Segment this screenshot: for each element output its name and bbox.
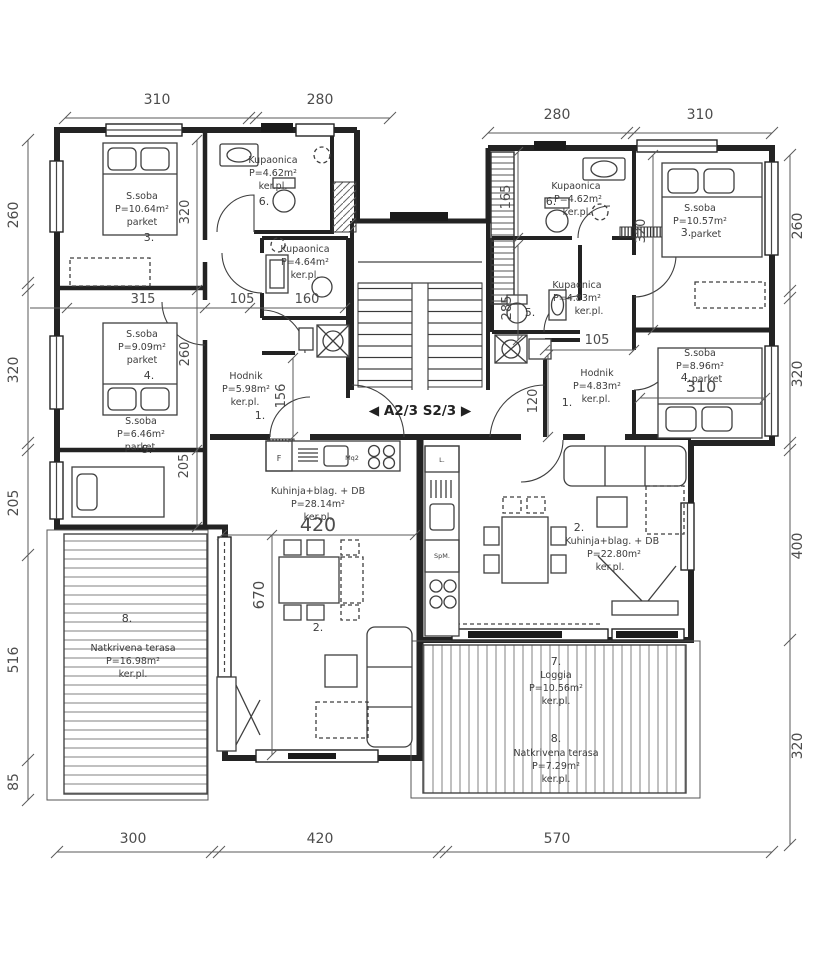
room-left-kitchen-area: P=28.14m² bbox=[291, 499, 345, 510]
room-right-bath5-area: P=4.83m² bbox=[553, 293, 601, 304]
closet-shelving bbox=[491, 152, 514, 304]
floor-plan-drawing: 310 280 280 310 300 420 570 260 320 205 … bbox=[0, 0, 818, 960]
room-right-hodnik-area: P=4.83m² bbox=[573, 381, 621, 392]
dim-left-2: 320 bbox=[6, 357, 22, 384]
room-left-bed4-area: P=9.09m² bbox=[118, 342, 166, 353]
room-left-hodnik-floor: ker.pl. bbox=[231, 397, 260, 408]
room-right-bath6-number: 6. bbox=[546, 195, 557, 208]
room-right-kitchen-area: P=22.80m² bbox=[587, 549, 641, 560]
room-right-bed4-floor: parket bbox=[692, 374, 723, 385]
room-left-terrace-area: P=16.98m² bbox=[106, 656, 160, 667]
dim-left-5: 85 bbox=[6, 773, 22, 791]
room-right-hodnik-number: 1. bbox=[562, 396, 573, 409]
room-left-bath6-area: P=4.62m² bbox=[249, 168, 297, 179]
dim-bottom-1: 300 bbox=[120, 831, 147, 847]
roller-shutter-left bbox=[261, 123, 293, 132]
room-left-bath7-floor: ker.pl. bbox=[291, 270, 320, 281]
room-left-kitchen-number: 2. bbox=[313, 621, 324, 634]
room-right-terrace-number: 8. bbox=[551, 732, 562, 745]
room-left-bed3-number: 3. bbox=[144, 231, 155, 244]
room-right-loggia-name: Loggia bbox=[540, 670, 571, 681]
room-right-loggia-floor: ker.pl. bbox=[542, 696, 571, 707]
room-left-bed4-name: S.soba bbox=[126, 329, 158, 340]
room-left-bed4-number: 4. bbox=[144, 369, 155, 382]
dim-inner-205: 205 bbox=[177, 454, 192, 479]
dim-left-4: 516 bbox=[6, 647, 22, 674]
room-right-kitchen-floor: ker.pl. bbox=[596, 562, 625, 573]
dim-inner-156: 156 bbox=[274, 384, 289, 409]
dim-inner-165: 165 bbox=[499, 185, 514, 210]
room-left-bath7-name: Kupaonica bbox=[280, 244, 329, 255]
room-left-bed5-name: S.soba bbox=[125, 416, 157, 427]
dim-right-2: 320 bbox=[790, 361, 806, 388]
room-right-bath6-name: Kupaonica bbox=[551, 181, 600, 192]
room-right-kitchen-number: 2. bbox=[574, 521, 585, 534]
dim-right-3: 400 bbox=[790, 533, 806, 560]
dim-inner-105-left: 105 bbox=[230, 292, 255, 307]
dim-right-4: 320 bbox=[790, 733, 806, 760]
dim-top-right-1: 280 bbox=[544, 107, 571, 123]
room-right-bath6-floor: ker.pl. bbox=[563, 207, 592, 218]
counter-label-right: L. bbox=[439, 456, 445, 464]
room-right-terrace-name: Natkrivena terasa bbox=[513, 748, 598, 759]
room-left-hodnik-name: Hodnik bbox=[229, 371, 263, 382]
apartment-direction-marker: ◀ A2/3 S2/3 ▶ bbox=[369, 403, 472, 419]
dim-inner-120: 120 bbox=[526, 389, 541, 414]
dim-inner-105-right: 105 bbox=[585, 333, 610, 348]
room-left-bath6-floor: ker.pl. bbox=[259, 181, 288, 192]
staircase bbox=[358, 212, 482, 390]
room-left-kitchen-name: Kuhinja+blag. + DB bbox=[271, 486, 365, 497]
room-left-kitchen-floor: ker.pl. bbox=[304, 512, 333, 523]
room-right-bed4-name: S.soba bbox=[684, 348, 716, 359]
floor-plan-page: 310 280 280 310 300 420 570 260 320 205 … bbox=[0, 0, 818, 960]
room-right-hodnik-floor: ker.pl. bbox=[582, 394, 611, 405]
dim-top-right-2: 310 bbox=[687, 107, 714, 123]
room-right-bath5-number: 5. bbox=[525, 306, 536, 319]
dishwasher-label-right: SpM. bbox=[434, 552, 450, 560]
dim-right-1: 260 bbox=[790, 213, 806, 240]
room-left-hodnik-number: 1. bbox=[255, 409, 266, 422]
dim-inner-315: 315 bbox=[131, 292, 156, 307]
room-left-hodnik-area: P=5.98m² bbox=[222, 384, 270, 395]
room-left-bed5-area: P=6.46m² bbox=[117, 429, 165, 440]
washer-label-left: Mq2 bbox=[345, 454, 359, 462]
room-right-terrace-area: P=7.29m² bbox=[532, 761, 580, 772]
roller-shutter-right bbox=[534, 141, 566, 150]
room-left-bed3-name: S.soba bbox=[126, 191, 158, 202]
dim-left-1: 260 bbox=[6, 202, 22, 229]
fridge-label-left: F bbox=[277, 454, 282, 463]
room-left-bath7-area: P=4.64m² bbox=[281, 257, 329, 268]
room-right-loggia-number: 7. bbox=[551, 655, 562, 668]
dim-top-left-1: 310 bbox=[144, 92, 171, 108]
room-left-bed5-number: 5. bbox=[142, 443, 153, 456]
room-right-loggia-area: P=10.56m² bbox=[529, 683, 583, 694]
room-left-bed3-floor: parket bbox=[127, 217, 158, 228]
room-left-bath6-name: Kupaonica bbox=[248, 155, 297, 166]
dim-bottom-3: 570 bbox=[544, 831, 571, 847]
room-left-terrace-number: 8. bbox=[122, 612, 133, 625]
room-right-terrace-floor: ker.pl. bbox=[542, 774, 571, 785]
dim-left-3: 205 bbox=[6, 490, 22, 517]
room-right-bath6-area: P=4.62m² bbox=[554, 194, 602, 205]
room-right-bath5-name: Kupaonica bbox=[552, 280, 601, 291]
room-right-kitchen-name: Kuhinja+blag. + DB bbox=[565, 536, 659, 547]
room-left-bed3-area: P=10.64m² bbox=[115, 204, 169, 215]
stair-window bbox=[390, 212, 448, 221]
room-right-hodnik-name: Hodnik bbox=[580, 368, 614, 379]
room-right-bed3-floor: parket bbox=[691, 229, 722, 240]
dim-top-left-2: 280 bbox=[307, 92, 334, 108]
dim-inner-285: 285 bbox=[500, 296, 515, 321]
room-left-bed4-floor: parket bbox=[127, 355, 158, 366]
dim-inner-670: 670 bbox=[250, 581, 268, 610]
dim-inner-260: 260 bbox=[178, 342, 193, 367]
dim-inner-320-right: 320 bbox=[634, 219, 649, 244]
dim-inner-160: 160 bbox=[295, 292, 320, 307]
room-left-bath6-number: 6. bbox=[259, 195, 270, 208]
room-left-terrace-name: Natkrivena terasa bbox=[90, 643, 175, 654]
room-right-bed3-name: S.soba bbox=[684, 203, 716, 214]
dim-inner-320-left: 320 bbox=[178, 200, 193, 225]
room-right-bath5-floor: ker.pl. bbox=[575, 306, 604, 317]
room-right-bed3-number: 3. bbox=[681, 226, 692, 239]
dim-bottom-2: 420 bbox=[307, 831, 334, 847]
room-left-terrace-floor: ker.pl. bbox=[119, 669, 148, 680]
room-right-bed4-number: 4. bbox=[681, 371, 692, 384]
